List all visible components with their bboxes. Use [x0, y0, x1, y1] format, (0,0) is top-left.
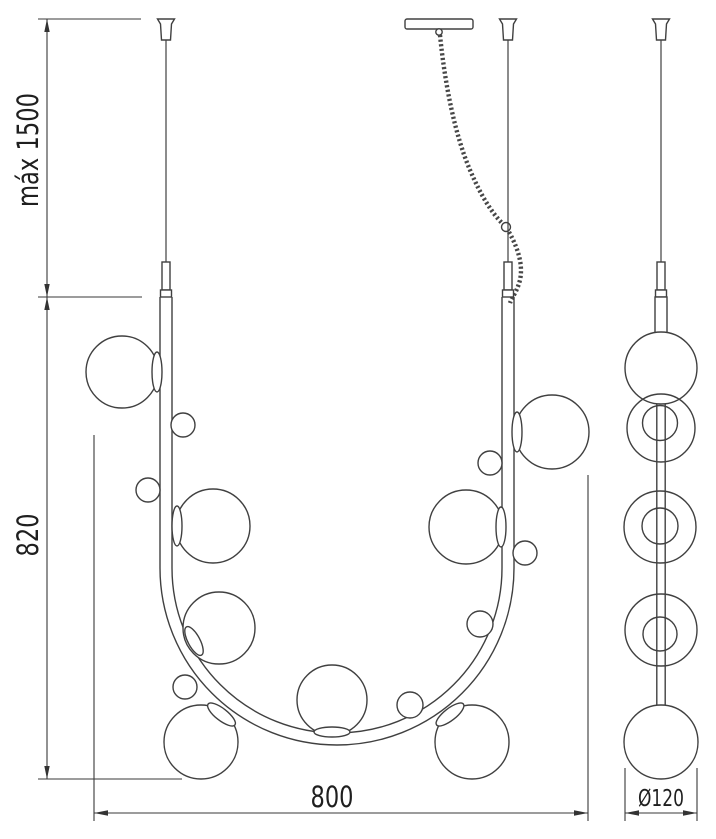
- globe: [624, 705, 698, 779]
- globe: [176, 489, 250, 563]
- globe-edge-on: [624, 491, 696, 563]
- cable-fitting-joint: [656, 290, 667, 297]
- cable-cone-mount: [653, 19, 670, 40]
- canopy-plate: [405, 19, 473, 29]
- right-suspension: [500, 19, 517, 297]
- cable-fitting: [657, 262, 665, 290]
- cable-cone-mount: [158, 19, 175, 40]
- small-globe: [642, 508, 678, 544]
- dimension-label-max-suspension: máx 1500: [11, 93, 45, 207]
- cable-fitting-joint: [503, 290, 514, 297]
- globe-edge-on: [625, 594, 697, 666]
- globe: [183, 592, 255, 664]
- globe: [86, 336, 158, 408]
- cable-cone-mount: [500, 19, 517, 40]
- ceiling-canopy: [405, 19, 473, 35]
- drawing-svg: máx 1500 820 800 Ø120: [0, 0, 716, 839]
- arrowhead-down: [44, 284, 49, 297]
- lamp-technical-drawing: máx 1500 820 800 Ø120: [0, 0, 716, 839]
- dimension-label-fixture-height: 820: [11, 514, 45, 557]
- small-globe: [136, 478, 160, 502]
- arrowhead-left: [94, 810, 108, 815]
- globe: [429, 490, 503, 564]
- cord-grip-ball: [502, 223, 511, 232]
- side-view: [624, 19, 698, 779]
- dimension-label-fixture-width: 800: [311, 780, 354, 814]
- arrowhead-right: [683, 810, 697, 815]
- small-globe: [173, 675, 197, 699]
- cable-fitting: [504, 262, 512, 290]
- arrowhead-down: [44, 766, 49, 779]
- cable-fitting: [162, 262, 170, 290]
- dimension-max-1500: máx 1500: [11, 19, 141, 297]
- front-view: [86, 19, 589, 779]
- small-globe: [171, 413, 195, 437]
- arrowhead-up: [44, 19, 49, 32]
- power-cord-upper: [440, 35, 502, 223]
- small-globe: [397, 692, 423, 718]
- small-globe: [478, 451, 502, 475]
- arrowhead-up: [44, 297, 49, 310]
- canopy-cord-nub: [436, 29, 442, 35]
- tube-top: [655, 297, 667, 334]
- globe: [297, 665, 367, 735]
- small-globe: [643, 406, 678, 441]
- cable-fitting-joint: [161, 290, 172, 297]
- globe-neck: [172, 506, 182, 546]
- globe: [625, 332, 697, 404]
- globe-neck: [496, 507, 506, 547]
- small-globe: [643, 617, 677, 651]
- arrowhead-left: [625, 810, 639, 815]
- small-globe: [467, 611, 493, 637]
- small-globe: [513, 541, 537, 565]
- globe-neck: [152, 352, 162, 392]
- globe-neck: [512, 412, 522, 452]
- arrowhead-right: [574, 810, 588, 815]
- globe: [515, 395, 589, 469]
- left-suspension: [158, 19, 175, 297]
- dimension-label-globe-diameter: Ø120: [638, 786, 684, 812]
- globe-neck: [314, 727, 350, 737]
